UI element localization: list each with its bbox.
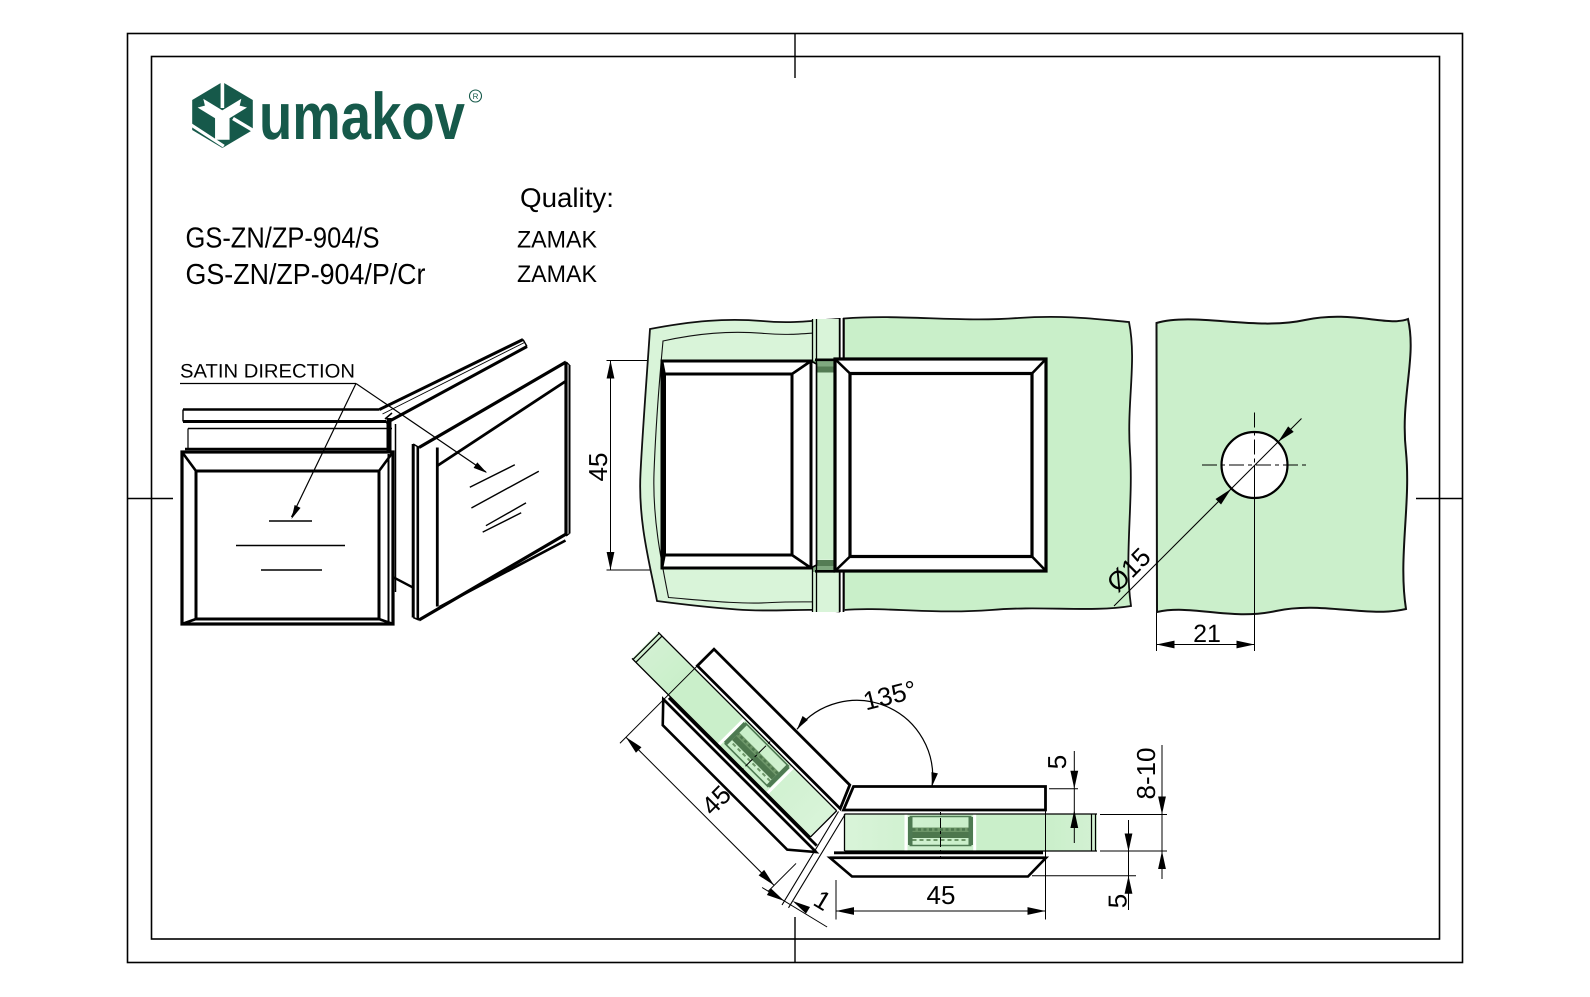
svg-text:5: 5 [1103,894,1133,908]
svg-text:GS-ZN/ZP-904/S: GS-ZN/ZP-904/S [186,223,380,255]
svg-text:Quality:: Quality: [520,183,614,213]
svg-text:ZAMAK: ZAMAK [517,227,597,254]
svg-text:umakov: umakov [259,79,465,153]
svg-text:8-10: 8-10 [1131,747,1161,799]
svg-text:5: 5 [1042,755,1072,769]
svg-text:SATIN DIRECTION: SATIN DIRECTION [180,361,355,383]
svg-text:GS-ZN/ZP-904/P/Cr: GS-ZN/ZP-904/P/Cr [186,259,426,291]
svg-text:45: 45 [927,880,956,910]
svg-text:ZAMAK: ZAMAK [517,261,597,288]
svg-text:21: 21 [1193,620,1221,648]
svg-text:45: 45 [583,453,613,482]
svg-text:R: R [473,92,479,101]
